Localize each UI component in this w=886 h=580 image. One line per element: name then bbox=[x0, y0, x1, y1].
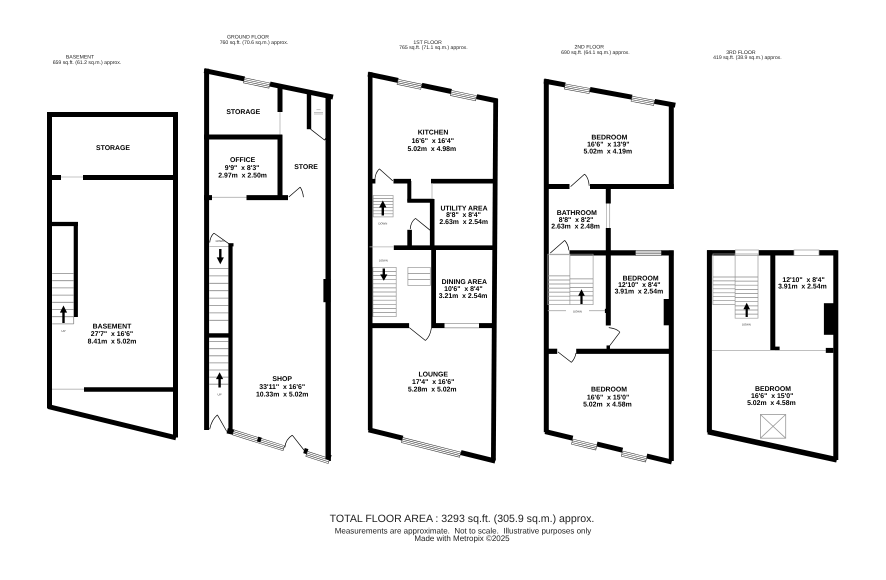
svg-text:760 sq.ft. (70.6 sq.m.) approx: 760 sq.ft. (70.6 sq.m.) approx. bbox=[220, 40, 289, 46]
svg-text:STORAGE: STORAGE bbox=[226, 109, 260, 116]
svg-text:BASEMENT: BASEMENT bbox=[93, 323, 132, 330]
svg-text:16'6" x 16'4": 16'6" x 16'4" bbox=[412, 138, 454, 145]
svg-text:27'7" x 16'6": 27'7" x 16'6" bbox=[91, 331, 133, 338]
svg-text:OFFICE: OFFICE bbox=[230, 157, 256, 164]
svg-text:419 sq.ft. (38.9 sq.m.) approx: 419 sq.ft. (38.9 sq.m.) approx. bbox=[713, 55, 782, 61]
svg-text:2.63m x 2.48m: 2.63m x 2.48m bbox=[551, 223, 600, 230]
svg-text:Made with Metropix ©2025: Made with Metropix ©2025 bbox=[414, 534, 510, 543]
svg-text:STORAGE: STORAGE bbox=[96, 145, 130, 152]
svg-text:33'11'' x 16'6": 33'11'' x 16'6" bbox=[259, 384, 305, 391]
svg-text:BEDROOM: BEDROOM bbox=[591, 387, 627, 394]
svg-text:8.41m x 5.02m: 8.41m x 5.02m bbox=[88, 339, 137, 346]
svg-text:BEDROOM: BEDROOM bbox=[591, 134, 627, 141]
svg-text:SHOP: SHOP bbox=[272, 376, 292, 383]
svg-text:9'9" x 8'3": 9'9" x 8'3" bbox=[225, 165, 260, 172]
svg-text:659 sq.ft. (61.2 sq.m.) approx: 659 sq.ft. (61.2 sq.m.) approx. bbox=[53, 60, 122, 66]
svg-text:DOWN: DOWN bbox=[379, 259, 388, 263]
svg-text:BEDROOM: BEDROOM bbox=[755, 386, 791, 393]
svg-text:5.02m x 4.98m: 5.02m x 4.98m bbox=[407, 146, 456, 153]
svg-text:UP: UP bbox=[61, 329, 65, 333]
svg-text:3.91m x 2.54m: 3.91m x 2.54m bbox=[615, 289, 664, 296]
svg-text:690 sq.ft. (64.1 sq.m.) approx: 690 sq.ft. (64.1 sq.m.) approx. bbox=[561, 50, 630, 56]
svg-text:5.02m x 4.58m: 5.02m x 4.58m bbox=[583, 402, 632, 409]
svg-text:10.33m x 5.02m: 10.33m x 5.02m bbox=[256, 391, 308, 398]
svg-text:765 sq.ft. (71.1 sq.m.) approx: 765 sq.ft. (71.1 sq.m.) approx. bbox=[399, 45, 468, 51]
svg-text:3.91m x 2.54m: 3.91m x 2.54m bbox=[778, 284, 827, 291]
svg-text:5.28m x 5.02m: 5.28m x 5.02m bbox=[408, 386, 457, 393]
svg-text:16'6" x 15'0": 16'6" x 15'0" bbox=[751, 393, 793, 400]
svg-text:2.97m x 2.50m: 2.97m x 2.50m bbox=[218, 172, 267, 179]
svg-text:UP: UP bbox=[218, 393, 222, 397]
svg-text:3.21m x 2.54m: 3.21m x 2.54m bbox=[439, 293, 488, 300]
svg-text:DOWN: DOWN bbox=[216, 239, 225, 243]
svg-text:DOWN: DOWN bbox=[378, 221, 387, 225]
svg-text:DOWN: DOWN bbox=[573, 310, 582, 314]
svg-text:STORE: STORE bbox=[294, 164, 318, 171]
svg-text:5.02m x 4.19m: 5.02m x 4.19m bbox=[583, 148, 632, 155]
svg-text:DOWN: DOWN bbox=[742, 323, 751, 327]
svg-text:KITCHEN: KITCHEN bbox=[418, 130, 449, 137]
svg-text:LOUNGE: LOUNGE bbox=[418, 371, 448, 378]
svg-text:TOTAL FLOOR AREA : 3293 sq.ft.: TOTAL FLOOR AREA : 3293 sq.ft. (305.9 sq… bbox=[330, 513, 595, 525]
svg-text:5.02m x 4.58m: 5.02m x 4.58m bbox=[747, 400, 796, 407]
svg-text:17'4" x 16'6": 17'4" x 16'6" bbox=[412, 379, 454, 386]
svg-text:2.63m x 2.54m: 2.63m x 2.54m bbox=[439, 219, 488, 226]
